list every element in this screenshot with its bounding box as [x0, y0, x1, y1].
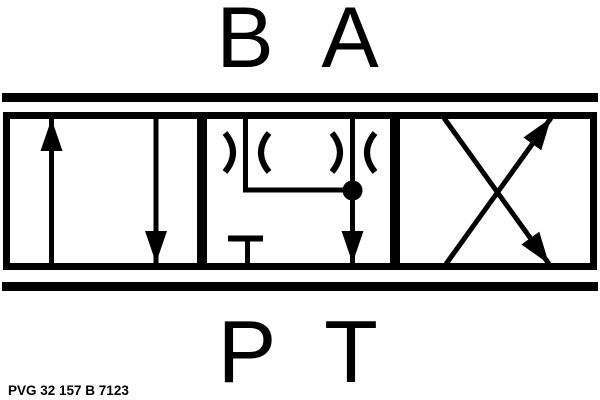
- throttle-arc-right-icon: [332, 133, 340, 172]
- port-label-p: P: [218, 302, 277, 400]
- port-label-b: B: [216, 0, 273, 86]
- top-rail-line: [2, 93, 598, 102]
- valve-schematic-page: B A: [0, 0, 600, 400]
- blocked-port-bar: [228, 236, 263, 242]
- frame-right-edge: [590, 112, 597, 270]
- section-divider-right: [390, 112, 400, 270]
- frame-top-edge: [3, 112, 597, 119]
- bottom-port-labels: P T: [218, 302, 378, 400]
- spool-position-right: [444, 118, 551, 264]
- model-code: PVG 32 157 B 7123: [8, 383, 129, 398]
- top-port-labels: B A: [216, 0, 379, 86]
- throttle-arc-left-icon: [367, 133, 375, 172]
- frame-bottom-edge: [3, 263, 597, 270]
- spool-position-left: [52, 119, 157, 264]
- valve-schematic: B A: [0, 0, 600, 400]
- frame-left-edge: [3, 112, 10, 270]
- throttle-arc-right-icon: [225, 133, 233, 172]
- bottom-rail-line: [2, 282, 598, 291]
- port-label-a: A: [321, 0, 379, 86]
- junction-dot: [343, 181, 363, 201]
- spool-position-neutral: [225, 119, 375, 263]
- section-divider-left: [197, 112, 207, 270]
- port-label-t: T: [324, 302, 378, 400]
- blocked-port-p-symbol: [228, 236, 263, 264]
- throttle-arc-left-icon: [261, 133, 269, 172]
